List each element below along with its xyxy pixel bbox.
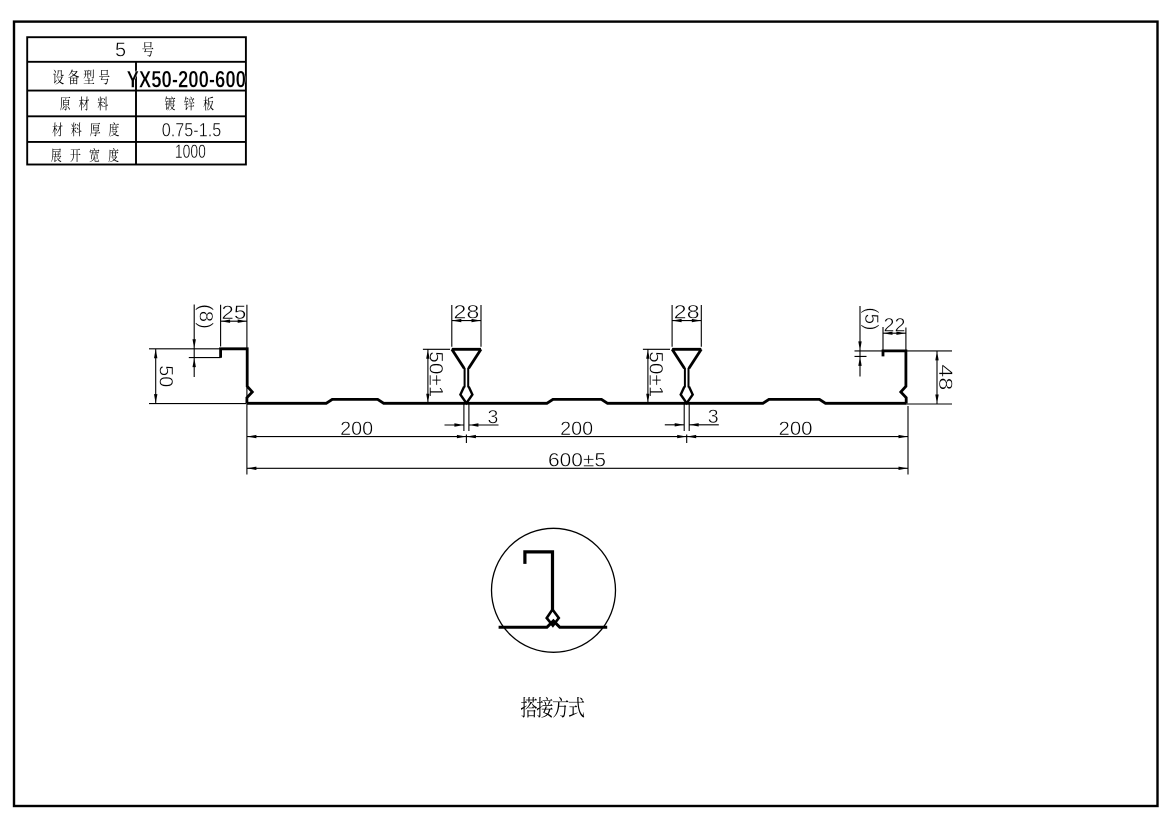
svg-text:(8): (8) [194,304,216,329]
svg-text:22: 22 [884,315,906,337]
svg-text:48: 48 [934,364,956,390]
svg-text:50±1: 50±1 [424,351,446,397]
svg-text:28: 28 [674,301,700,323]
svg-text:50: 50 [154,365,176,387]
svg-text:5: 5 [115,40,126,62]
svg-text:3: 3 [487,406,498,428]
svg-text:200: 200 [779,418,813,440]
svg-text:200: 200 [560,418,593,440]
svg-text:25: 25 [221,302,246,324]
svg-text:600±5: 600±5 [548,450,606,472]
svg-text:(5): (5) [860,307,882,330]
svg-text:28: 28 [453,301,479,323]
svg-text:YX50-200-600: YX50-200-600 [127,67,246,94]
svg-text:3: 3 [708,406,719,428]
svg-text:0.75-1.5: 0.75-1.5 [162,120,222,142]
svg-text:1000: 1000 [175,141,206,163]
svg-text:200: 200 [340,418,373,440]
svg-text:50±1: 50±1 [644,351,666,397]
